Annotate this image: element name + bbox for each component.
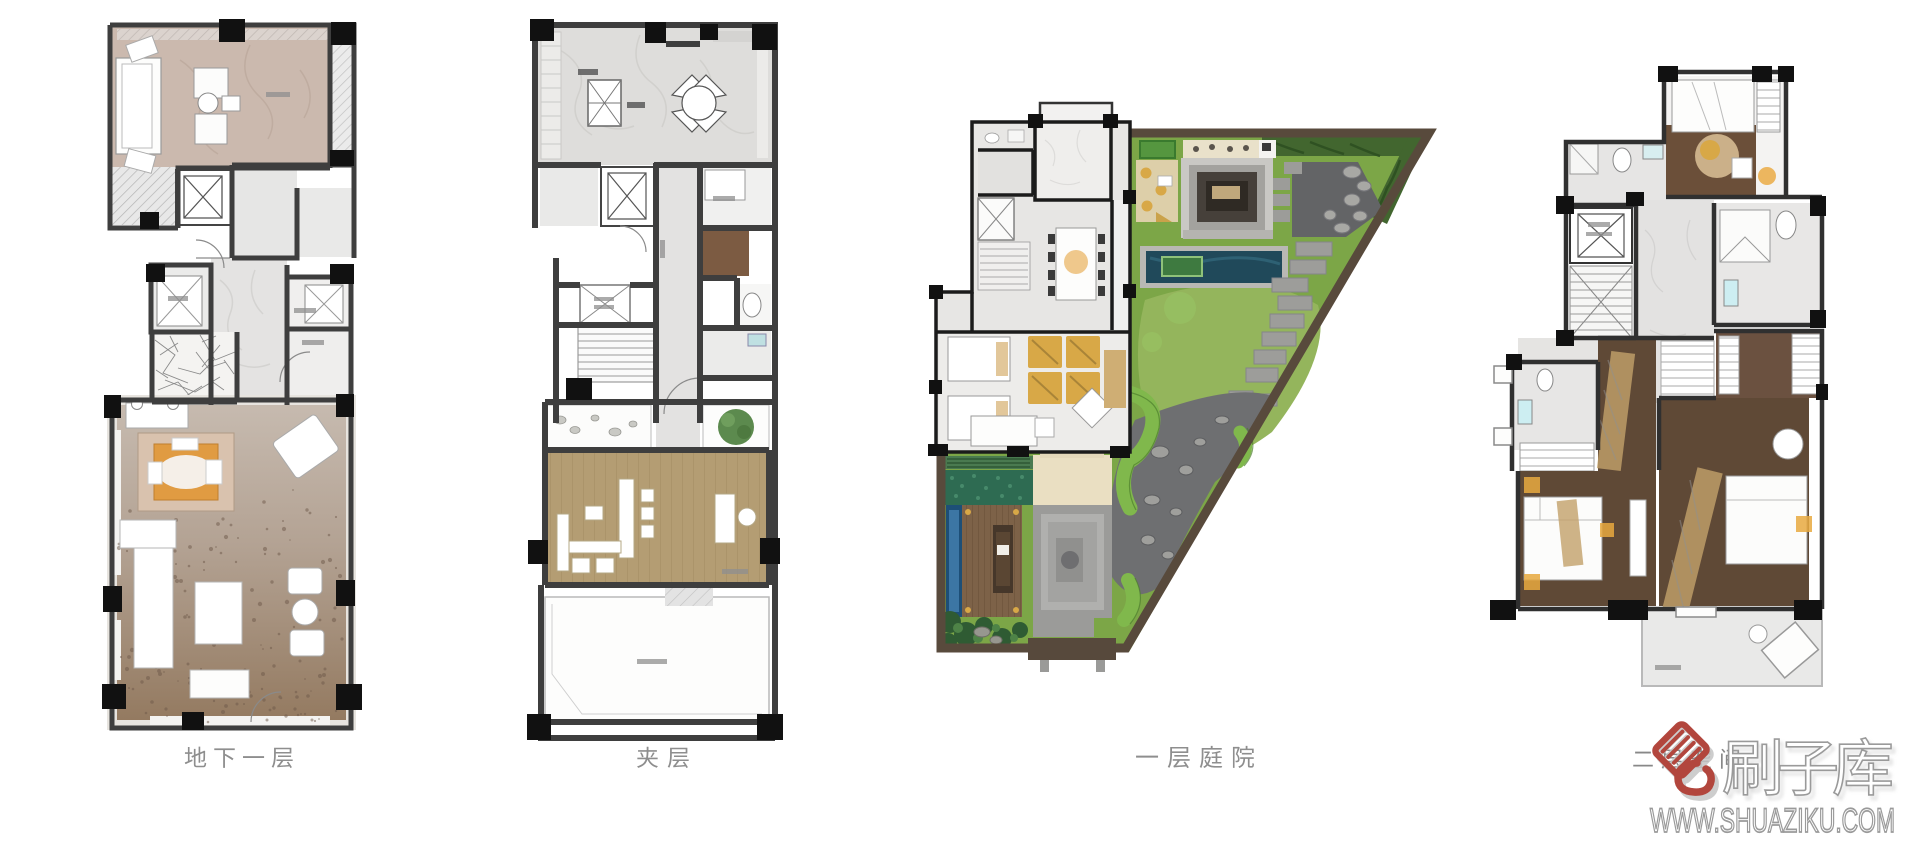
svg-text:WWW.SHUAZIKU.COM: WWW.SHUAZIKU.COM [1650, 802, 1895, 840]
